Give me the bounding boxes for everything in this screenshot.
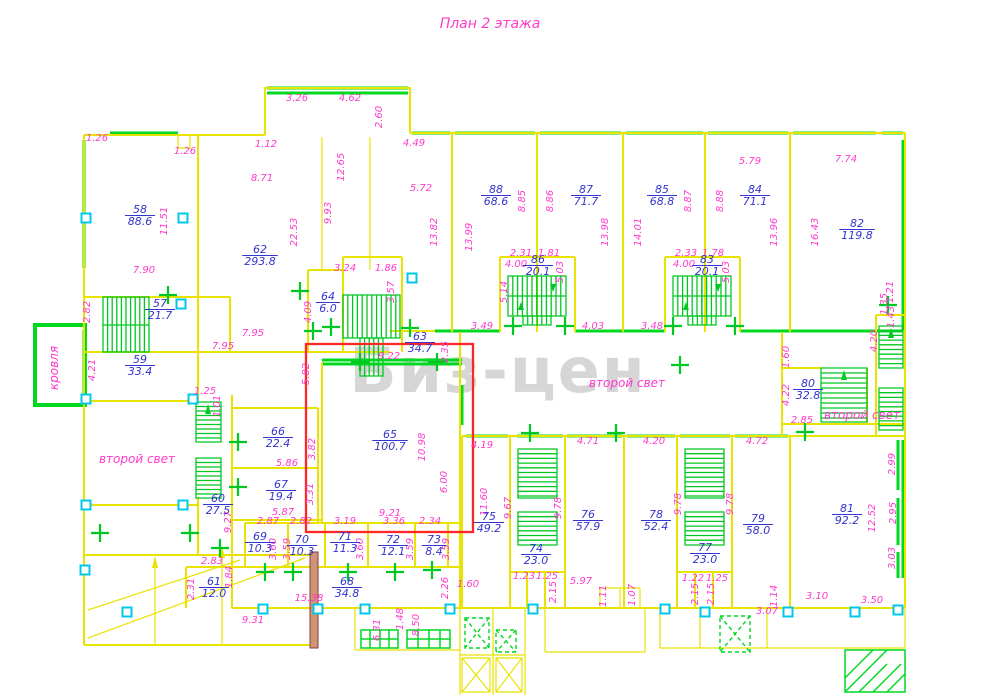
dimension-label: 9.31 [242,615,264,626]
dimension-label: 10.98 [417,433,428,462]
column-marker [177,300,186,309]
dimension-label: 8.50 [411,614,422,636]
column-marker [529,605,538,614]
elevator-shafts [465,616,750,652]
column-marker [179,214,188,223]
column-marker [123,608,132,617]
room-area-69: 10.3 [248,542,273,555]
dimension-label: 5.72 [410,183,432,194]
dimension-label: 1.07 [627,583,638,606]
column-marker [446,605,455,614]
dimension-label: 3.49 [471,321,493,332]
dimension-label: 3.48 [641,321,663,332]
dimension-label: 13.96 [769,218,780,247]
dimension-label: 4.62 [339,93,361,104]
dimension-label: 7.95 [212,341,234,352]
room-area-76: 57.9 [576,520,601,533]
room-area-65: 100.7 [374,440,406,453]
dimension-label: 4.49 [403,138,425,149]
room-area-82: 119.8 [841,229,873,242]
dimension-label: 12.52 [867,504,878,533]
room-area-77: 23.0 [693,553,718,566]
dimension-label: 2.31 [510,248,532,259]
stair-hatch [518,512,557,545]
room-area-59: 33.4 [128,365,153,378]
dimension-label: 8.87 [683,189,694,212]
dimension-label: 2.34 [419,516,441,527]
dimension-label: 3.57 [386,280,397,303]
dimension-label: 7.90 [133,265,155,276]
dimension-label: 2.15 [690,583,701,605]
column-marker [81,566,90,575]
room-area-88: 68.6 [484,195,509,208]
dimension-label: 4.20 [869,330,880,352]
dimension-label: 5.03 [721,261,732,283]
dimension-label: 1.26 [174,146,196,157]
room-area-64: 6.0 [319,302,337,315]
dimension-label: 5.79 [739,156,761,167]
dimension-label: 6.31 [372,619,383,641]
room-area-57: 21.7 [148,309,173,322]
room-area-60: 27.5 [206,504,231,517]
floor-plan-page: Биз-цен План 2 этажа [0,0,1000,697]
dimension-label: 1.25 [706,573,728,584]
dimension-label: 1.60 [457,579,479,590]
dimension-label: 8.86 [545,190,556,212]
room-area-67: 19.4 [269,490,294,503]
dimension-label: 3.19 [334,516,356,527]
dimension-label: 4.22 [781,384,792,406]
room-area-63: 34.7 [408,342,433,355]
column-marker [179,501,188,510]
room-area-73: 8.4 [425,545,443,558]
column-marker [82,214,91,223]
column-marker [661,605,670,614]
room-area-78: 52.4 [644,520,669,533]
stair-hatch [688,316,716,325]
column-marker [361,605,370,614]
dimension-label: 8.88 [715,190,726,212]
dimension-label: 5.14 [499,281,510,303]
dimension-label: 7.95 [242,328,264,339]
dimension-label: 9.78 [553,497,564,519]
annotation-label: второй свет [99,452,176,466]
room-area-71: 11.3 [333,542,358,555]
dimension-label: 2.31 [186,578,197,600]
dimension-label: 5.03 [555,261,566,283]
room-area-81: 92.2 [835,514,860,527]
room-area-80: 32.8 [796,389,821,402]
dimension-label: 2.87 [257,516,280,527]
dimension-label: 1.26 [86,133,108,144]
dimension-label: 2.82 [290,516,312,527]
dimension-label: 5.86 [276,458,298,469]
room-area-61: 12.0 [202,587,227,600]
floor-plan-drawing: Биз-цен План 2 этажа [0,0,1000,697]
dimension-label: 2.60 [374,106,385,128]
dimension-label: 4.21 [87,359,98,381]
dimension-label: 4.72 [746,436,768,447]
dimension-label: 16.43 [810,218,821,247]
column-marker [701,608,710,617]
stair-hatch [523,316,551,325]
room-area-68: 34.8 [335,587,360,600]
room-area-75: 49.2 [477,522,502,535]
dimension-label: 2.26 [440,577,451,599]
dimension-label: 4.71 [577,436,599,447]
dimension-label: 13.98 [600,218,611,247]
dimension-label: 3.50 [861,595,883,606]
dimension-label: 9.78 [725,493,736,515]
stair-hatch [685,449,724,498]
room-area-85: 68.8 [650,195,675,208]
dimension-label: 4.03 [582,321,604,332]
dimension-label: 3.10 [806,591,828,602]
column-marker [408,274,417,283]
dimension-label: 5.82 [301,363,312,385]
annotation-label: второй свет [824,408,901,422]
dimension-label: 9.67 [503,496,514,519]
dimension-label: 4.20 [643,436,665,447]
dimension-label: 14.01 [633,218,644,247]
room-area-74: 23.0 [524,554,549,567]
dimension-label: 3.03 [887,547,898,569]
column-marker [894,606,903,615]
dimension-label: 4.19 [471,440,493,451]
column-marker [82,395,91,404]
dimension-label: 13.99 [464,223,475,252]
dimension-label: 1.48 [395,608,406,630]
dimension-label: 9.78 [673,493,684,515]
dimension-label: 4.00 [505,259,527,270]
dimension-label: 5.97 [570,576,593,587]
dimension-label: 1.86 [375,263,397,274]
dimension-label: 1.11 [598,585,609,607]
room-area-66: 22.4 [266,437,291,450]
dimension-label: 1.60 [781,346,792,368]
stair-hatch [518,449,557,498]
dimension-label: 6.00 [439,471,450,493]
dimension-label: 11.51 [159,207,170,236]
dimension-label: 3.82 [307,438,318,460]
dimension-label: 2.82 [82,301,93,323]
dimension-label: 2.83 [201,556,223,567]
dimension-label: 22.53 [289,218,300,247]
room-area-84: 71.1 [743,195,768,208]
room-area-58: 88.6 [128,215,153,228]
plan-title: План 2 этажа [440,16,541,32]
bottom-right-hatch [845,650,905,692]
dimension-label: 12.65 [336,153,347,182]
dimension-label: 1.14 [769,585,780,607]
room-area-79: 58.0 [746,524,771,537]
dimension-label: 2.95 [888,502,899,524]
dimension-label: 13.82 [429,218,440,247]
room-area-72: 12.1 [381,545,406,558]
dimension-label: 4.00 [673,259,695,270]
annotation-label: второй свет [589,376,666,390]
dimension-label: 1.01 [212,395,223,417]
dimension-label: 2.33 [675,248,697,259]
dimension-label: 4.09 [303,301,314,323]
dimension-label: 3.31 [305,483,316,505]
dimension-label: 2.35 [440,341,451,363]
dimension-label: 15.38 [295,593,324,604]
dimension-label: 2.15 [548,581,559,603]
column-marker [851,608,860,617]
dimension-label: 1.22 [682,573,704,584]
column-marker [314,605,323,614]
dimension-label: 8.71 [251,173,273,184]
dimension-label: 3.24 [334,263,356,274]
dimension-label: 2.85 [791,415,813,426]
dimension-label: 7.74 [835,154,857,165]
dimension-label: 1.25 [536,571,558,582]
annotation-label: кровля [47,346,61,390]
room-area-87: 71.7 [574,195,599,208]
dimension-label: 9.93 [323,202,334,224]
room-area-70: 10.3 [290,545,315,558]
dimension-label: 1.23 [513,571,535,582]
door-markers-layer [91,282,897,581]
dimension-label: 8.85 [517,190,528,212]
column-marker [82,501,91,510]
column-marker [784,608,793,617]
dimension-label: 2.15 [706,583,717,605]
room-area-62: 293.8 [244,255,276,268]
dimension-label: 3.07 [756,606,779,617]
dimension-label: 3.59 [405,538,416,560]
dimension-label: 3.36 [383,516,405,527]
dimension-label: 1.12 [255,139,277,150]
room-area-86: 20.1 [526,265,551,278]
dimension-label: 2.99 [887,453,898,475]
dimension-label: 1.43 [886,306,897,328]
dimension-label: 3.26 [286,93,308,104]
dimension-label: 9.22 [378,351,400,362]
room-area-83: 20.1 [695,265,720,278]
dimension-label: 1.84 [224,566,235,588]
column-marker [259,605,268,614]
